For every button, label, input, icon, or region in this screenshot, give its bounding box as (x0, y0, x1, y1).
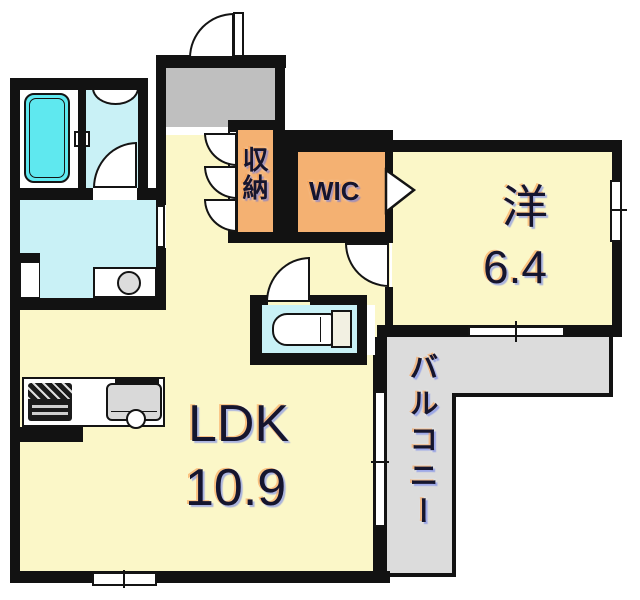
kitchen-counter (22, 377, 165, 427)
sink-back-ledge (115, 378, 159, 384)
bathtub-icon (24, 93, 70, 183)
ldk-label: LDK (188, 398, 289, 450)
stove-icon (28, 383, 72, 421)
ldk-balcony-window (374, 391, 386, 527)
western-room-area: 6.4 (483, 244, 547, 290)
storage-label: 収納 (241, 146, 267, 202)
wic-label: WIC (309, 178, 360, 204)
western-room-window-east (610, 180, 622, 242)
powder-room-door-leaf (156, 205, 165, 248)
vanity-basin-icon (117, 271, 141, 295)
balcony-label: バルコニー (406, 352, 435, 532)
storage-niche (20, 262, 40, 298)
toilet-icon (272, 313, 333, 346)
floor-plan: 収納 WIC 洋 6.4 LDK 10.9 バルコニー (0, 0, 640, 600)
ldk-area: 10.9 (185, 462, 286, 514)
entry-door-leaf (233, 12, 244, 57)
toilet-tank-icon (331, 310, 352, 348)
wic-folding-door-icon (384, 167, 418, 215)
western-room-label: 洋 (502, 184, 548, 230)
faucet-icon (126, 409, 146, 429)
service-gap (367, 305, 375, 355)
entry-door-arc (189, 13, 234, 58)
kitchen-sink-icon (106, 383, 162, 421)
vanity-counter (93, 267, 157, 298)
western-room-floor (392, 152, 612, 325)
entrance-floor (166, 68, 275, 127)
